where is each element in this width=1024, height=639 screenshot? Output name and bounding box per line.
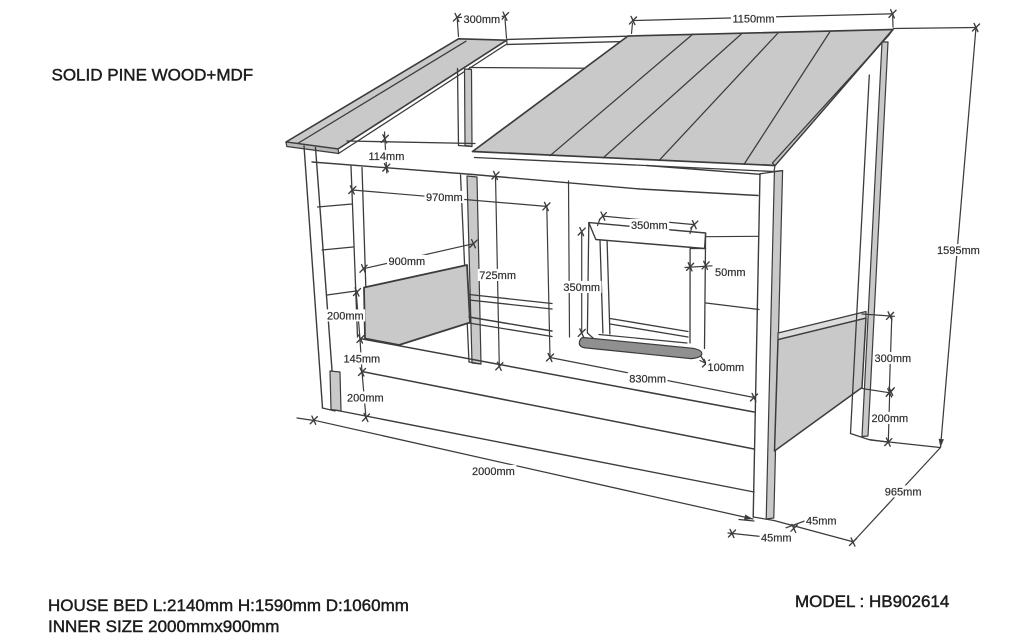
svg-text:900mm: 900mm	[389, 256, 426, 268]
svg-text:1150mm: 1150mm	[733, 14, 775, 26]
svg-text:2000mm: 2000mm	[472, 466, 515, 478]
svg-text:725mm: 725mm	[479, 270, 516, 282]
svg-text:SOLID PINE WOOD+MDF: SOLID PINE WOOD+MDF	[52, 66, 254, 85]
svg-text:830mm: 830mm	[629, 374, 666, 386]
svg-text:200mm: 200mm	[327, 311, 364, 323]
svg-text:970mm: 970mm	[426, 192, 463, 204]
svg-text:100mm: 100mm	[708, 362, 745, 374]
svg-text:114mm: 114mm	[369, 151, 405, 163]
svg-text:INNER SIZE 2000mmx900mm: INNER SIZE 2000mmx900mm	[48, 617, 279, 636]
svg-text:350mm: 350mm	[631, 220, 668, 232]
svg-text:965mm: 965mm	[885, 487, 922, 499]
svg-text:HOUSE BED L:2140mm H:1590mm D:: HOUSE BED L:2140mm H:1590mm D:1060mm	[48, 596, 409, 615]
svg-text:145mm: 145mm	[344, 354, 381, 366]
svg-text:200mm: 200mm	[872, 413, 909, 425]
svg-text:MODEL : HB902614: MODEL : HB902614	[795, 592, 949, 611]
svg-text:300mm: 300mm	[875, 353, 912, 365]
svg-text:45mm: 45mm	[761, 533, 792, 545]
svg-text:1595mm: 1595mm	[937, 245, 980, 257]
svg-text:350mm: 350mm	[563, 282, 600, 294]
svg-text:45mm: 45mm	[806, 516, 837, 528]
svg-text:200mm: 200mm	[347, 393, 384, 405]
svg-text:50mm: 50mm	[715, 267, 746, 279]
svg-text:300mm: 300mm	[464, 14, 501, 26]
